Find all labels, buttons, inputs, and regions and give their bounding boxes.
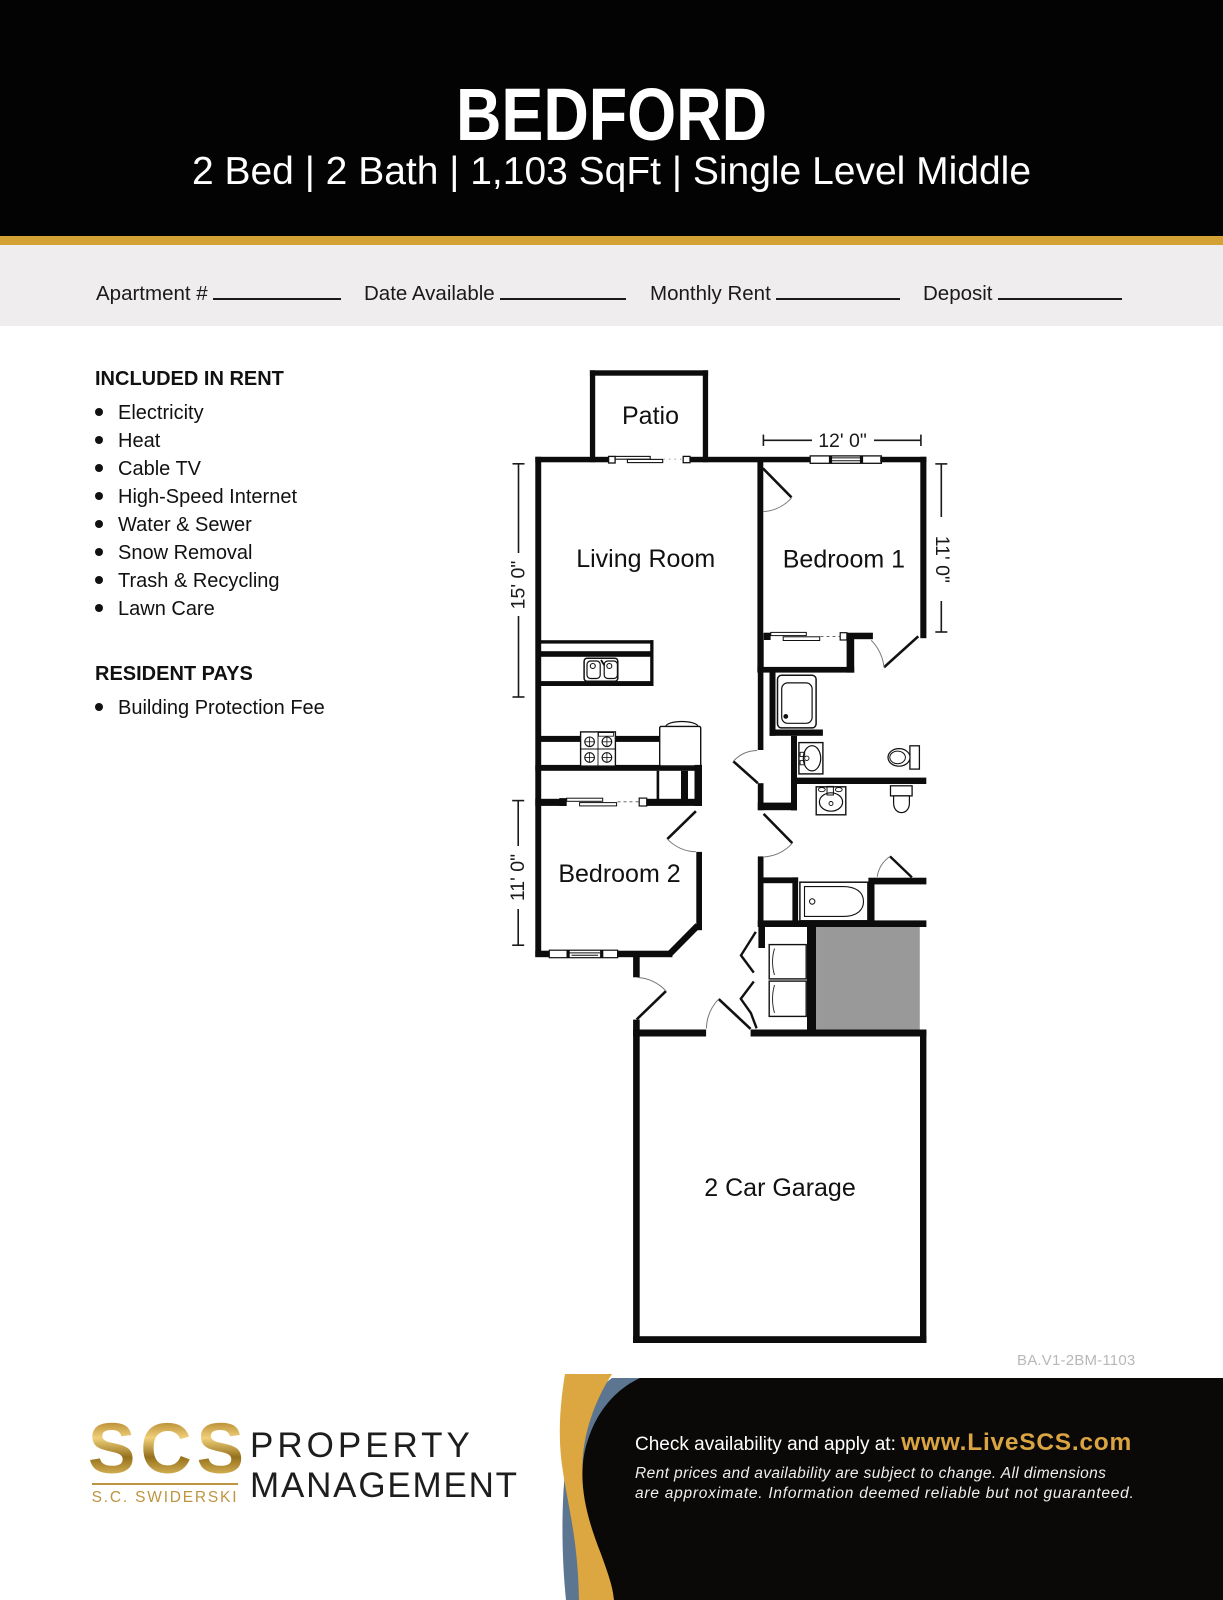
svg-text:11' 0": 11' 0" bbox=[931, 536, 953, 583]
svg-text:Patio: Patio bbox=[622, 402, 679, 430]
svg-text:Bedroom 1: Bedroom 1 bbox=[783, 545, 905, 573]
svg-text:11' 0": 11' 0" bbox=[507, 854, 529, 901]
svg-text:2 Car Garage: 2 Car Garage bbox=[704, 1174, 855, 1202]
svg-text:Living Room: Living Room bbox=[576, 545, 715, 573]
svg-text:15' 0": 15' 0" bbox=[508, 561, 530, 610]
svg-text:12' 0": 12' 0" bbox=[818, 430, 867, 452]
svg-text:Bedroom 2: Bedroom 2 bbox=[558, 860, 680, 888]
